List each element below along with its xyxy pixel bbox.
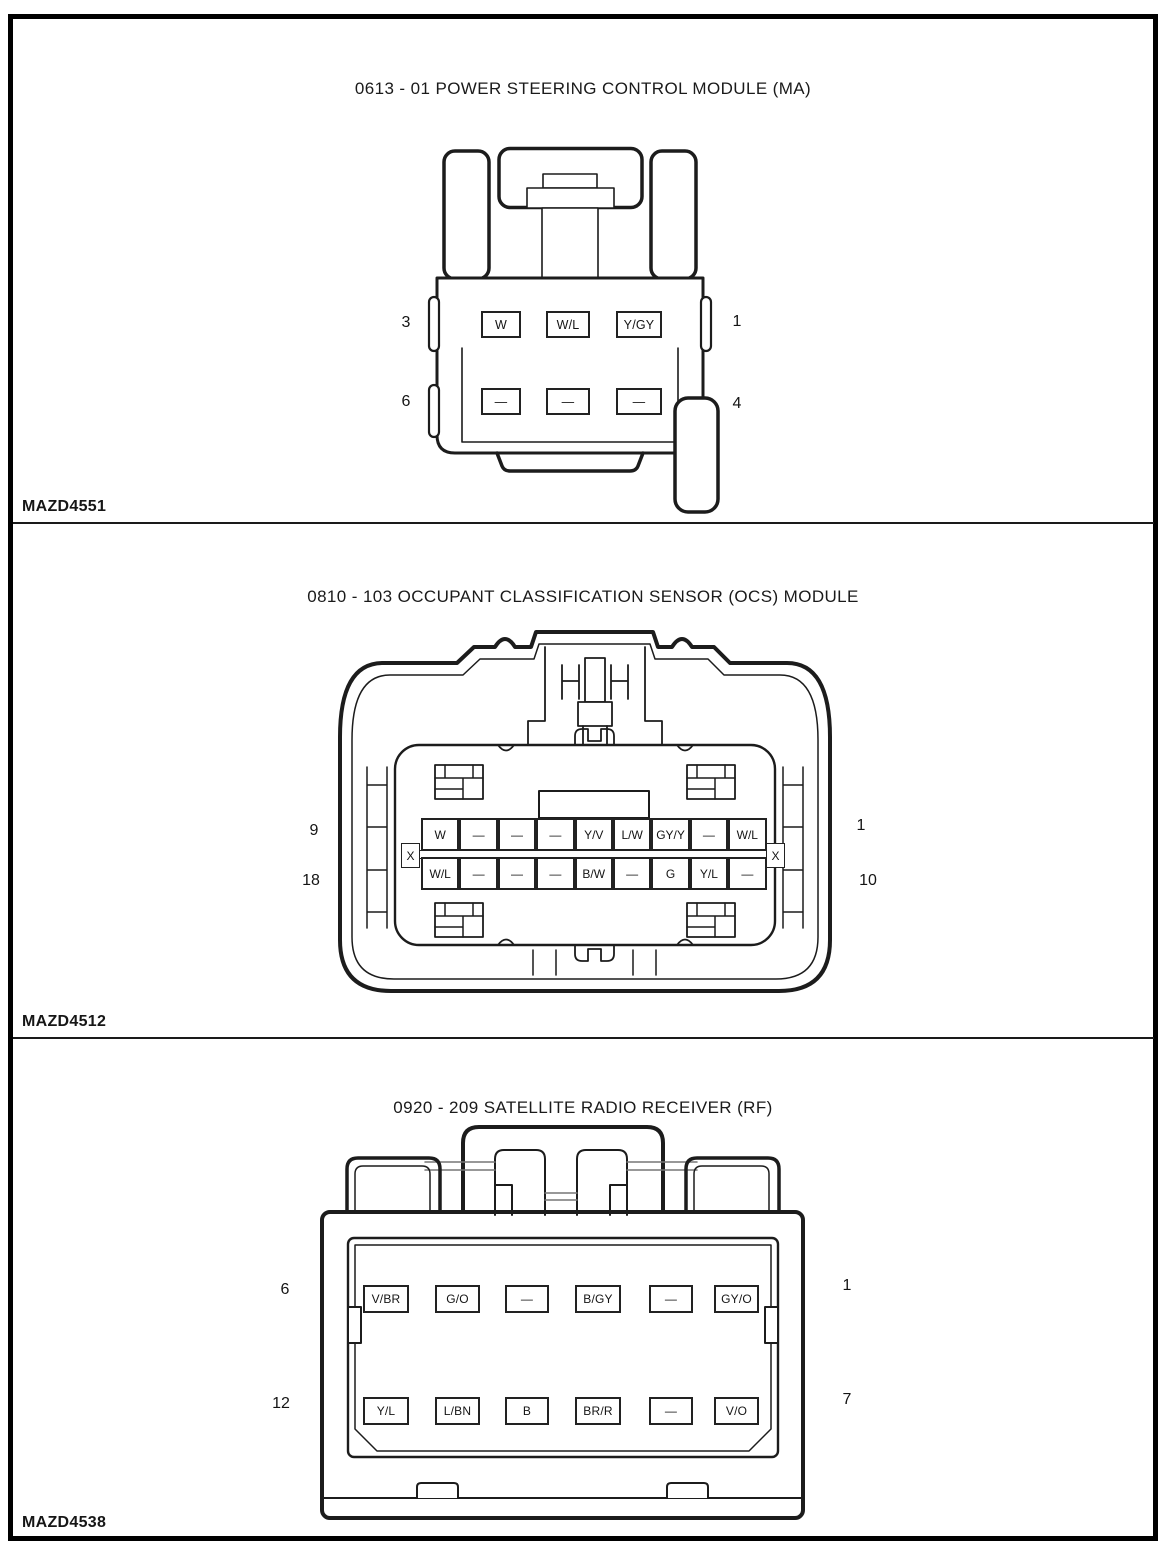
bottom-tab-left (417, 1483, 458, 1498)
pin-label: — (498, 857, 536, 890)
latch-lower-block (578, 702, 612, 726)
pin-label: — (613, 857, 651, 890)
pin-number: 18 (297, 872, 325, 890)
latch-shaft (542, 208, 598, 278)
pin-label: — (505, 1285, 549, 1313)
figure-code: MAZD4538 (22, 1514, 106, 1532)
pin-label: — (616, 388, 662, 415)
pin-label: — (649, 1285, 693, 1313)
connector-ear-right (651, 151, 696, 279)
pin-number: 3 (396, 314, 416, 332)
pin-label: L/W (613, 818, 651, 851)
bottom-tab (497, 453, 643, 471)
pin-label: — (498, 818, 536, 851)
pin-label: V/BR (363, 1285, 409, 1313)
pin-label: Y/L (690, 857, 728, 890)
side-bump-left-upper (429, 297, 439, 351)
connector-leg (675, 398, 718, 512)
connector-body (437, 278, 703, 453)
figure-code: MAZD4512 (22, 1013, 106, 1031)
connector-key-x-icon: X (766, 843, 785, 868)
pin-label: B (505, 1397, 549, 1425)
pin-label: Y/L (363, 1397, 409, 1425)
corner-buckle-bottom-right (687, 903, 735, 937)
pin-label: W/L (728, 818, 766, 851)
pin-label: V/O (714, 1397, 759, 1425)
pin-grid-row-top: W — — — Y/V L/W GY/Y — W/L (421, 818, 767, 851)
panel-separator (13, 522, 1154, 524)
pin-number: 10 (854, 872, 882, 890)
pin-label: W/L (546, 311, 590, 338)
pin-label: BR/R (575, 1397, 621, 1425)
pin-label: W/L (421, 857, 459, 890)
pin-label: Y/V (575, 818, 613, 851)
connector-ear-left-inner (355, 1166, 430, 1212)
pin-label: — (536, 818, 574, 851)
pin-number: 1 (836, 1277, 858, 1295)
pin-label: — (481, 388, 521, 415)
keyway-slot (539, 791, 649, 818)
pin-label: — (649, 1397, 693, 1425)
bottom-tab-right (667, 1483, 708, 1498)
pin-label: B/W (575, 857, 613, 890)
pin-label: W (421, 818, 459, 851)
pin-label: GY/O (714, 1285, 759, 1313)
panel-title: 0613 - 01 POWER STEERING CONTROL MODULE … (0, 79, 1166, 99)
connector-ear-left (444, 151, 489, 279)
side-nub-right (765, 1307, 778, 1343)
pin-number: 7 (836, 1391, 858, 1409)
pin-label: W (481, 311, 521, 338)
pin-label: G (651, 857, 689, 890)
pin-label: — (459, 818, 497, 851)
pin-label: Y/GY (616, 311, 662, 338)
pin-number: 4 (727, 395, 747, 413)
pin-label: — (546, 388, 590, 415)
pin-label: — (459, 857, 497, 890)
pin-grid-row-bottom: W/L — — — B/W — G Y/L — (421, 857, 767, 890)
pin-label: — (536, 857, 574, 890)
corner-buckle-bottom-left (435, 903, 483, 937)
connector-diagram-satellite-radio (315, 1115, 815, 1525)
pin-label: G/O (435, 1285, 480, 1313)
panel-separator (13, 1037, 1154, 1039)
latch-center-block (585, 658, 605, 702)
pin-label: L/BN (435, 1397, 480, 1425)
pin-number: 9 (302, 822, 326, 840)
pin-label: B/GY (575, 1285, 621, 1313)
pin-number: 6 (396, 393, 416, 411)
pin-number: 12 (266, 1395, 296, 1413)
connector-key-x-icon: X (401, 843, 420, 868)
side-nub-left (348, 1307, 361, 1343)
latch-tab (543, 174, 597, 188)
pin-number: 1 (727, 313, 747, 331)
pin-number: 1 (850, 817, 872, 835)
corner-buckle-top-right (687, 765, 735, 799)
pin-number: 6 (274, 1281, 296, 1299)
pin-label: GY/Y (651, 818, 689, 851)
pin-label: — (690, 818, 728, 851)
document-page: 0613 - 01 POWER STEERING CONTROL MODULE … (0, 0, 1166, 1558)
pin-label: — (728, 857, 766, 890)
side-bump-right (701, 297, 711, 351)
figure-code: MAZD4551 (22, 498, 106, 516)
corner-buckle-top-left (435, 765, 483, 799)
connector-ear-right-inner (694, 1166, 769, 1212)
side-bump-left-lower (429, 385, 439, 437)
panel-title: 0810 - 103 OCCUPANT CLASSIFICATION SENSO… (0, 587, 1166, 607)
latch-base (527, 188, 614, 208)
